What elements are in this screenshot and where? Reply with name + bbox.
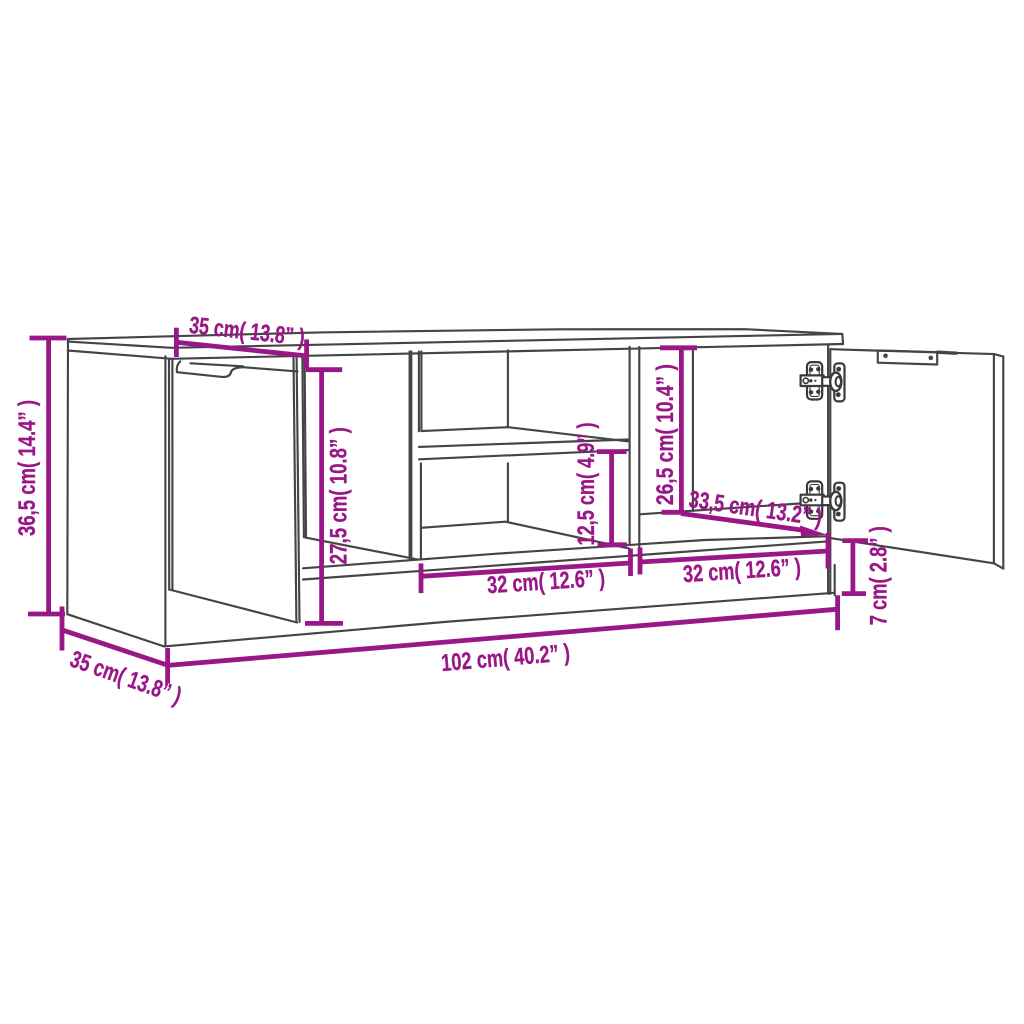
svg-text:7 cm( 2.8” ): 7 cm( 2.8” ) <box>866 526 893 625</box>
svg-text:27,5 cm( 10.8” ): 27,5 cm( 10.8” ) <box>326 427 353 564</box>
svg-text:12,5 cm( 4.9” ): 12,5 cm( 4.9” ) <box>573 423 600 546</box>
svg-text:26,5 cm( 10.4” ): 26,5 cm( 10.4” ) <box>652 364 679 505</box>
svg-text:36,5 cm( 14.4” ): 36,5 cm( 14.4” ) <box>14 400 41 536</box>
